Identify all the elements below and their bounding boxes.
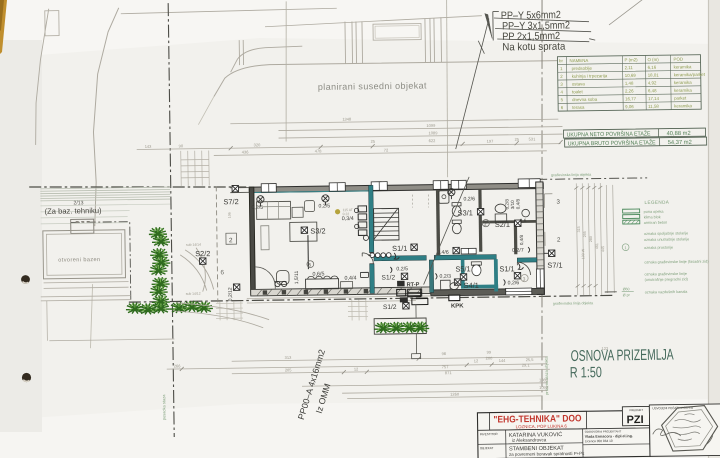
svg-text:3/10: 3/10 (510, 200, 515, 209)
svg-text:građevinska linija objekta: građevinska linija objekta (551, 173, 591, 178)
svg-text:dnevna soba: dnevna soba (572, 97, 598, 102)
svg-text:100 W: 100 W (581, 248, 585, 259)
svg-text:P (m2): P (m2) (624, 57, 638, 62)
svg-text:OBJEKAT: OBJEKAT (480, 446, 494, 450)
svg-text:143: 143 (145, 144, 153, 149)
svg-text:1,48: 1,48 (625, 81, 634, 86)
svg-text:10,69: 10,69 (625, 73, 637, 78)
svg-text:(Za baz. tehniku): (Za baz. tehniku) (45, 206, 103, 216)
svg-text:S2/1: S2/1 (495, 220, 510, 229)
svg-text:pesacka staza: pesacka staza (161, 394, 166, 420)
svg-text:armiran beton: armiran beton (644, 221, 667, 225)
svg-text:25,5: 25,5 (526, 357, 535, 362)
svg-text:205: 205 (285, 367, 293, 372)
svg-text:S1/2: S1/2 (381, 274, 395, 281)
svg-text:2,6: 2,6 (520, 218, 527, 224)
svg-text:313: 313 (285, 355, 293, 360)
svg-text:građevinska linija objekta: građevinska linija objekta (553, 301, 593, 306)
svg-text:3: 3 (523, 277, 526, 283)
svg-text:keramika: keramika (674, 103, 692, 108)
svg-text:757: 757 (442, 364, 450, 369)
svg-text:S1/1: S1/1 (499, 264, 514, 273)
svg-text:106: 106 (228, 212, 232, 218)
svg-text:S1/1: S1/1 (392, 244, 407, 253)
svg-text:oznaka prostorije: oznaka prostorije (644, 246, 673, 250)
svg-text:17,14: 17,14 (648, 96, 660, 101)
svg-text:toalet: toalet (572, 89, 584, 94)
svg-text:S1/2: S1/2 (383, 304, 397, 311)
svg-text:S5/1: S5/1 (455, 264, 470, 273)
svg-text:oznaka unutrašnje stolarije: oznaka unutrašnje stolarije (644, 237, 689, 242)
svg-text:predsoblje: predsoblje (572, 66, 593, 71)
svg-text:oznaka građevinske linije: oznaka građevinske linije (644, 272, 686, 277)
svg-text:KPK: KPK (451, 303, 464, 309)
svg-text:1089: 1089 (428, 130, 438, 135)
svg-text:0,2/5: 0,2/5 (396, 266, 408, 272)
svg-text:ostava: ostava (572, 81, 586, 86)
svg-text:0,2/6: 0,2/6 (508, 280, 520, 286)
svg-text:otvoreni bazen: otvoreni bazen (58, 257, 100, 264)
svg-text:200: 200 (486, 356, 494, 361)
svg-text:40,88 m2: 40,88 m2 (667, 131, 691, 137)
svg-text:LOZNICA, POP LUKINA 6: LOZNICA, POP LUKINA 6 (516, 424, 568, 430)
svg-text:0,4/8: 0,4/8 (519, 234, 524, 245)
svg-text:11,58: 11,58 (648, 104, 659, 109)
svg-text:sub 14/12: sub 14/12 (186, 292, 201, 296)
svg-text:oznaka vazdušnih kanala: oznaka vazdušnih kanala (645, 290, 689, 295)
svg-text:0,4/6: 0,4/6 (437, 250, 449, 256)
svg-text:0.22: 0.22 (343, 212, 350, 216)
svg-text:266: 266 (174, 363, 182, 368)
svg-text:2: 2 (484, 222, 487, 228)
svg-text:Na kotu sprata: Na kotu sprata (502, 41, 565, 54)
svg-text:O (m): O (m) (647, 57, 659, 62)
svg-text:1099: 1099 (539, 385, 549, 390)
svg-text:1099: 1099 (426, 123, 436, 128)
svg-text:NAMENA: NAMENA (569, 58, 588, 63)
svg-text:POD: POD (673, 57, 683, 62)
svg-text:S3/1: S3/1 (458, 208, 473, 217)
svg-text:315: 315 (577, 226, 581, 232)
svg-text:6,48: 6,48 (648, 88, 657, 93)
svg-text:sub 14/14: sub 14/14 (186, 243, 201, 247)
svg-text:0,2/5: 0,2/5 (318, 203, 330, 209)
svg-text:Licenca 350 864 10: Licenca 350 864 10 (585, 439, 613, 443)
svg-text:iz Aleksandrovca: iz Aleksandrovca (512, 437, 547, 442)
svg-text:kuhinja i trpezarija: kuhinja i trpezarija (572, 73, 608, 79)
svg-text:S2/2: S2/2 (195, 249, 210, 258)
svg-text:OSNOVA PRIZEMLJA: OSNOVA PRIZEMLJA (571, 347, 675, 365)
svg-text:keramika: keramika (674, 88, 692, 93)
svg-text:ODGOVORNI PROJEKTANT: ODGOVORNI PROJEKTANT (585, 429, 622, 434)
svg-text:54,37 m2: 54,37 m2 (668, 140, 692, 146)
svg-text:S3/2: S3/2 (310, 226, 325, 235)
svg-text:16,77: 16,77 (625, 96, 637, 101)
svg-text:9,06: 9,06 (625, 104, 634, 109)
svg-text:478: 478 (315, 148, 323, 153)
svg-text:18,01: 18,01 (648, 73, 660, 78)
svg-text:4,92: 4,92 (648, 80, 657, 85)
svg-text:LEGENDA: LEGENDA (644, 200, 669, 205)
svg-text:2: 2 (229, 237, 233, 244)
svg-text:0,2/6: 0,2/6 (463, 196, 475, 202)
svg-text:0,2/5: 0,2/5 (251, 205, 263, 211)
svg-text:S7/2: S7/2 (223, 197, 238, 206)
svg-text:436: 436 (242, 149, 250, 154)
svg-text:6: 6 (220, 269, 224, 276)
svg-text:622: 622 (429, 138, 437, 143)
svg-text:0,4/4: 0,4/4 (344, 275, 356, 281)
svg-text:parket: parket (674, 96, 687, 101)
svg-text:za povremeni boravak spratnost: za povremeni boravak spratnosti P+Pk (509, 451, 585, 457)
svg-text:0,4/8: 0,4/8 (515, 199, 520, 210)
svg-text:klima blok: klima blok (644, 215, 661, 219)
svg-text:0,2/3: 0,2/3 (439, 274, 451, 280)
svg-text:0,2/8: 0,2/8 (504, 199, 509, 210)
svg-text:S7/1: S7/1 (547, 261, 562, 270)
svg-text:2,11: 2,11 (625, 65, 634, 70)
svg-text:0,2/12: 0,2/12 (228, 287, 234, 301)
svg-text:0,2/7: 0,2/7 (512, 248, 524, 254)
svg-text:2,26: 2,26 (625, 88, 634, 93)
svg-text:871: 871 (445, 370, 453, 375)
svg-text:6,16: 6,16 (648, 65, 657, 70)
svg-text:planirani susedni objekat: planirani susedni objekat (318, 80, 427, 92)
svg-text:INVESTITOR: INVESTITOR (480, 432, 499, 436)
svg-text:Ø60: Ø60 (623, 287, 630, 291)
svg-text:Ø pr: Ø pr (623, 293, 631, 297)
svg-text:197: 197 (487, 139, 495, 144)
svg-text:280: 280 (589, 236, 593, 242)
svg-text:461: 461 (595, 243, 599, 249)
svg-text:0,6/5: 0,6/5 (312, 271, 324, 277)
svg-text:1260: 1260 (450, 392, 460, 397)
svg-text:29,1: 29,1 (522, 363, 531, 368)
svg-text:keramika: keramika (674, 80, 692, 85)
svg-text:keramika: keramika (674, 64, 692, 69)
svg-text:1,5/11: 1,5/11 (294, 271, 300, 285)
svg-text:R 1:50: R 1:50 (570, 364, 602, 381)
svg-text:144: 144 (499, 358, 507, 363)
svg-text:RT-P: RT-P (407, 282, 420, 288)
svg-text:puna opeka: puna opeka (644, 210, 665, 214)
svg-text:445: 445 (601, 246, 605, 252)
svg-text:PREDMET: PREDMET (629, 408, 643, 412)
svg-text:531: 531 (529, 136, 537, 141)
svg-text:keramika/parket: keramika/parket (674, 72, 706, 77)
svg-text:0,3/4: 0,3/4 (342, 216, 354, 222)
svg-text:br: br (559, 58, 564, 63)
svg-text:320: 320 (254, 142, 262, 147)
svg-text:S4/1: S4/1 (464, 281, 479, 290)
svg-text:1348: 1348 (342, 117, 352, 122)
svg-text:1: 1 (624, 246, 626, 250)
svg-text:PZI: PZI (626, 414, 643, 426)
svg-text:1089: 1089 (539, 377, 549, 382)
svg-text:295: 295 (583, 231, 587, 237)
svg-text:terasa: terasa (572, 105, 585, 110)
svg-text:oznaka spoljašnje stolarije: oznaka spoljašnje stolarije (644, 231, 688, 236)
svg-text:(unutrašnje pregradni zid): (unutrašnje pregradni zid) (645, 277, 689, 282)
